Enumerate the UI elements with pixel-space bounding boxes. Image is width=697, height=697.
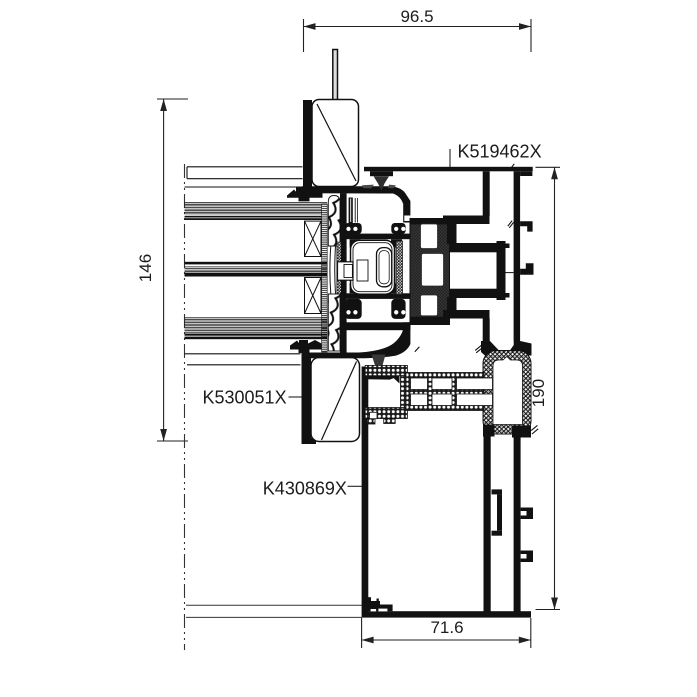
svg-text:96.5: 96.5 [400,7,433,26]
svg-text:K430869X: K430869X [263,479,347,499]
svg-text:190: 190 [529,379,548,407]
svg-text:146: 146 [136,254,155,282]
svg-text:71.6: 71.6 [430,618,463,637]
svg-text:K530051X: K530051X [203,387,287,407]
svg-text:K519462X: K519462X [458,142,542,162]
